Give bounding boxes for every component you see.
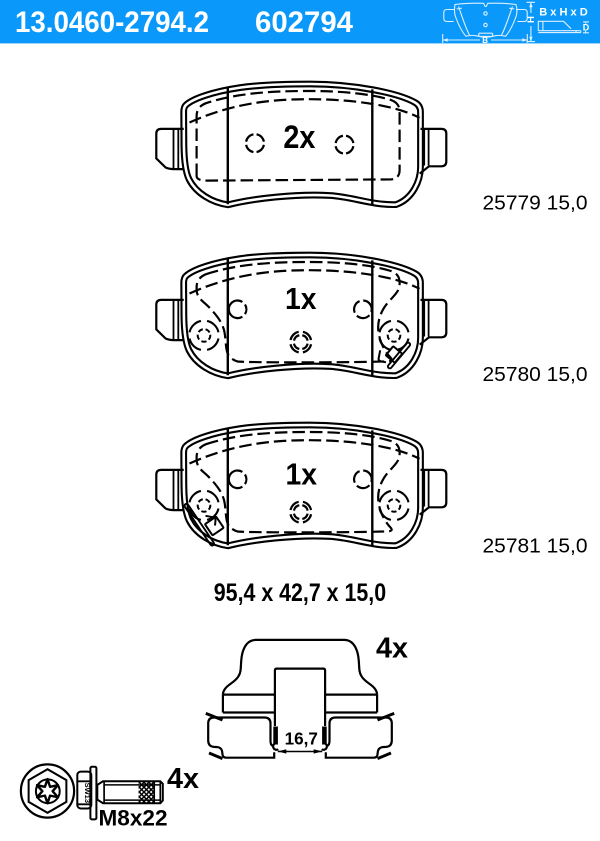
svg-text:D: D bbox=[583, 23, 590, 33]
svg-text:4x: 4x bbox=[167, 763, 199, 795]
svg-text:13.0460-2794.2: 13.0460-2794.2 bbox=[15, 6, 209, 39]
svg-text:2x: 2x bbox=[283, 119, 315, 155]
svg-text:H: H bbox=[526, 16, 537, 23]
svg-text:95,4 x 42,7 x 15,0: 95,4 x 42,7 x 15,0 bbox=[214, 579, 386, 607]
svg-text:B: B bbox=[482, 36, 488, 45]
svg-text:25780 15,0: 25780 15,0 bbox=[483, 364, 588, 386]
svg-text:25779 15,0: 25779 15,0 bbox=[483, 193, 588, 215]
svg-text:602794: 602794 bbox=[255, 6, 353, 39]
svg-text:SW13: SW13 bbox=[83, 783, 92, 803]
svg-text:M8x22: M8x22 bbox=[99, 806, 168, 831]
svg-text:1x: 1x bbox=[286, 457, 318, 492]
svg-text:25781 15,0: 25781 15,0 bbox=[483, 535, 588, 557]
svg-text:1x: 1x bbox=[285, 281, 317, 316]
svg-text:4x: 4x bbox=[376, 633, 408, 665]
svg-text:B x H x D: B x H x D bbox=[539, 7, 588, 19]
svg-text:16,7: 16,7 bbox=[285, 729, 318, 749]
